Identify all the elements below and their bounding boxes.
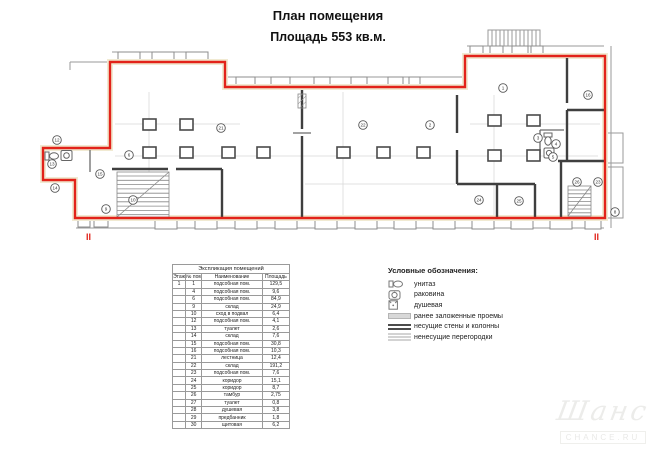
filled-opening-icon [388,311,414,321]
room-label: 25 [515,197,524,206]
area-subtitle: Площадь 553 кв.м. [0,30,656,44]
column [488,115,501,126]
table-row: 14склад7,6 [173,333,290,340]
legend-label: несущие стены и колонны [414,323,499,330]
legend-label: ранее заложенные проемы [414,313,503,320]
watermark-caption: CHANCE.RU [560,431,647,444]
sink-icon [388,290,414,300]
svg-text:10: 10 [130,198,136,203]
column [257,147,270,158]
table-row: 4подсобная пом.9,6 [173,288,290,295]
room-label: 21 [217,124,226,133]
table-title: Экспликация помещений [173,265,290,274]
room-label: 10 [129,196,138,205]
table-row: 16подсобная пом.10,3 [173,347,290,354]
bearing-wall-icon [388,322,414,332]
svg-text:5: 5 [552,155,555,160]
column [143,119,156,130]
page-title: План помещения [0,8,656,23]
room-label: 5 [549,153,558,162]
room-label: 24 [475,196,484,205]
column [337,147,350,158]
table-row: 15подсобная пом.30,8 [173,340,290,347]
col-header-number: № пом. [186,274,202,281]
svg-text:1: 1 [502,86,505,91]
filled-opening [298,94,306,108]
legend-item: раковина [388,290,568,301]
room-label: 9 [102,205,111,214]
toilet-icon [544,133,552,145]
svg-text:8: 8 [614,210,617,215]
legend-item: ранее заложенные проемы [388,311,568,322]
table-row: 26тамбур2,75 [173,392,290,399]
svg-text:26: 26 [574,180,580,185]
room-label: 22 [359,121,368,130]
legend-label: раковина [414,291,444,298]
watermark-logo: Шанс [535,396,670,427]
table-row: 22склад191,2 [173,362,290,369]
table-row: 21лестница12,4 [173,355,290,362]
room-label: 26 [573,178,582,187]
column [527,150,540,161]
table-row: 27туалет0,8 [173,399,290,406]
room-label: 1 [499,84,508,93]
col-header-floor: Этаж [173,274,186,281]
svg-text:12: 12 [54,138,60,143]
column [143,147,156,158]
section-mark-left: II [86,232,91,242]
room-label: 15 [96,170,105,179]
svg-text:22: 22 [360,123,366,128]
svg-text:9: 9 [105,207,108,212]
column [377,147,390,158]
table-row: 30щитовая6,2 [173,421,290,428]
column [488,150,501,161]
explication-table: Экспликация помещений Этаж № пом. Наимен… [172,264,290,429]
legend-item: несущие стены и колонны [388,321,568,332]
sink-icon [61,151,72,161]
room-label: 12 [53,136,62,145]
column [527,115,540,126]
table-row: 24коридор15,1 [173,377,290,384]
svg-text:24: 24 [476,198,482,203]
room-label: 23 [594,178,603,187]
legend-items: унитазраковинадушеваяранее заложенные пр… [388,279,568,343]
svg-text:6: 6 [128,153,131,158]
columns [143,115,540,161]
svg-text:25: 25 [516,199,522,204]
staircases [117,172,591,217]
table-row: 10сход в подвал6,4 [173,310,290,317]
legend-item: ненесущие перегородки [388,332,568,343]
legend: Условные обозначения: унитазраковинадуше… [388,266,568,343]
column [417,147,430,158]
col-header-area: Площадь [262,274,289,281]
svg-text:4: 4 [555,142,558,147]
shower-icon [388,300,414,310]
column [180,147,193,158]
svg-text:13: 13 [49,162,55,167]
toilet-icon [388,279,414,289]
table-row: 13туалет2,6 [173,325,290,332]
svg-text:21: 21 [218,126,224,131]
partition-icon [388,332,414,342]
legend-title: Условные обозначения: [388,266,568,275]
room-label: 13 [48,160,57,169]
toilet-icon [45,152,59,160]
column [222,147,235,158]
table-row: 11подсобная пом.129,5 [173,281,290,288]
svg-text:15: 15 [97,172,103,177]
explication-rows: 11подсобная пом.129,54подсобная пом.9,66… [173,281,290,429]
legend-item: душевая [388,300,568,311]
svg-text:3: 3 [537,136,540,141]
table-row: 29предбанник1,8 [173,414,290,421]
room-label: 6 [125,151,134,160]
legend-item: унитаз [388,279,568,290]
legend-label: унитаз [414,281,435,288]
table-row: 12подсобная пом.4,1 [173,318,290,325]
room-label: 3 [534,134,543,143]
svg-text:23: 23 [595,180,601,185]
legend-label: душевая [414,302,442,309]
table-row: 6подсобная пом.84,9 [173,296,290,303]
col-header-name: Наименование [202,274,263,281]
watermark: Шанс CHANCE.RU [538,396,668,445]
svg-text:16: 16 [585,93,591,98]
table-row: 9склад24,9 [173,303,290,310]
table-row: 23подсобная пом.7,6 [173,370,290,377]
floor-plan-page: 12131415910621222116345242526238 II II П… [0,0,670,474]
svg-text:2: 2 [429,123,432,128]
section-mark-right: II [594,232,599,242]
column [180,119,193,130]
room-label: 2 [426,121,435,130]
svg-text:14: 14 [52,186,58,191]
room-label: 14 [51,184,60,193]
table-row: 25коридор8,7 [173,384,290,391]
table-row: 28душевая3,8 [173,407,290,414]
room-label: 8 [611,208,620,217]
room-label: 4 [552,140,561,149]
legend-label: ненесущие перегородки [414,334,492,341]
room-label: 16 [584,91,593,100]
